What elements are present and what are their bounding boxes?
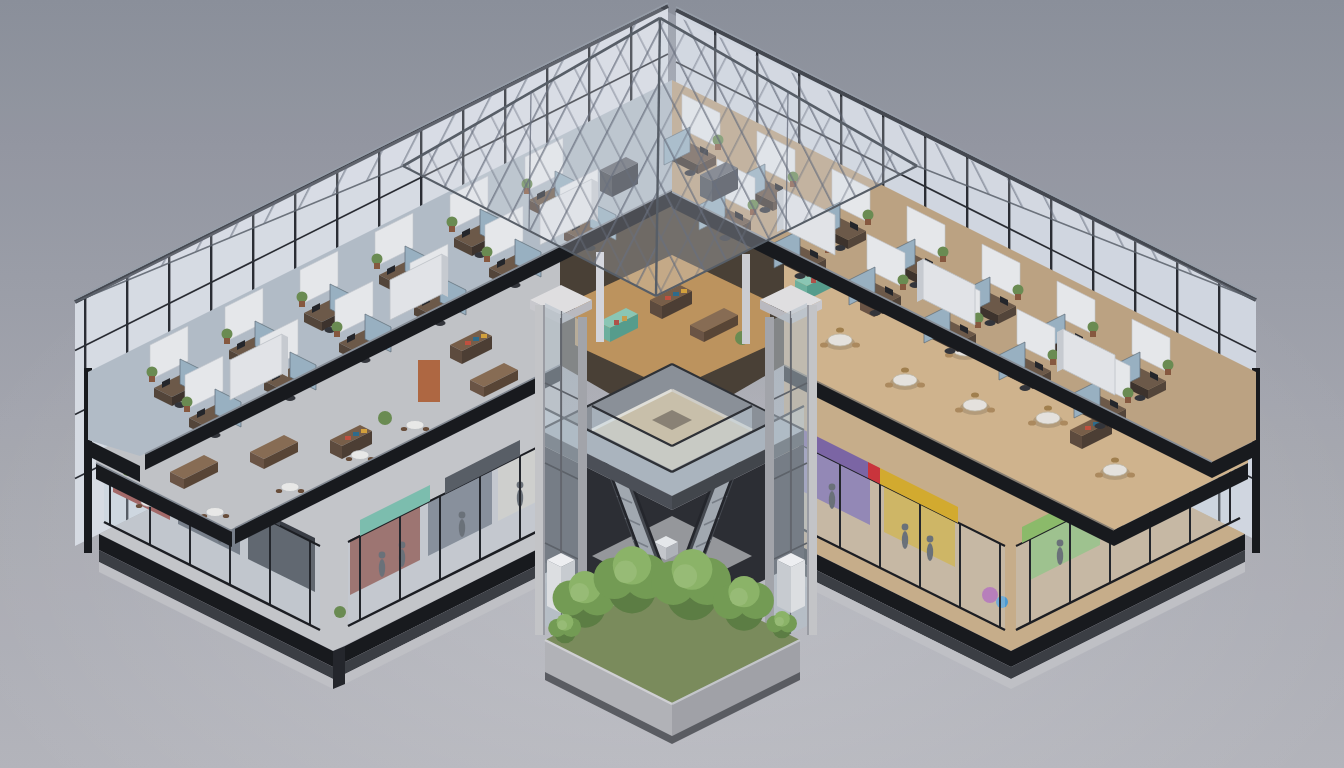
rendered-scene [0, 0, 1344, 768]
vignette [0, 0, 1344, 768]
isometric-building-cutaway [0, 0, 1344, 768]
